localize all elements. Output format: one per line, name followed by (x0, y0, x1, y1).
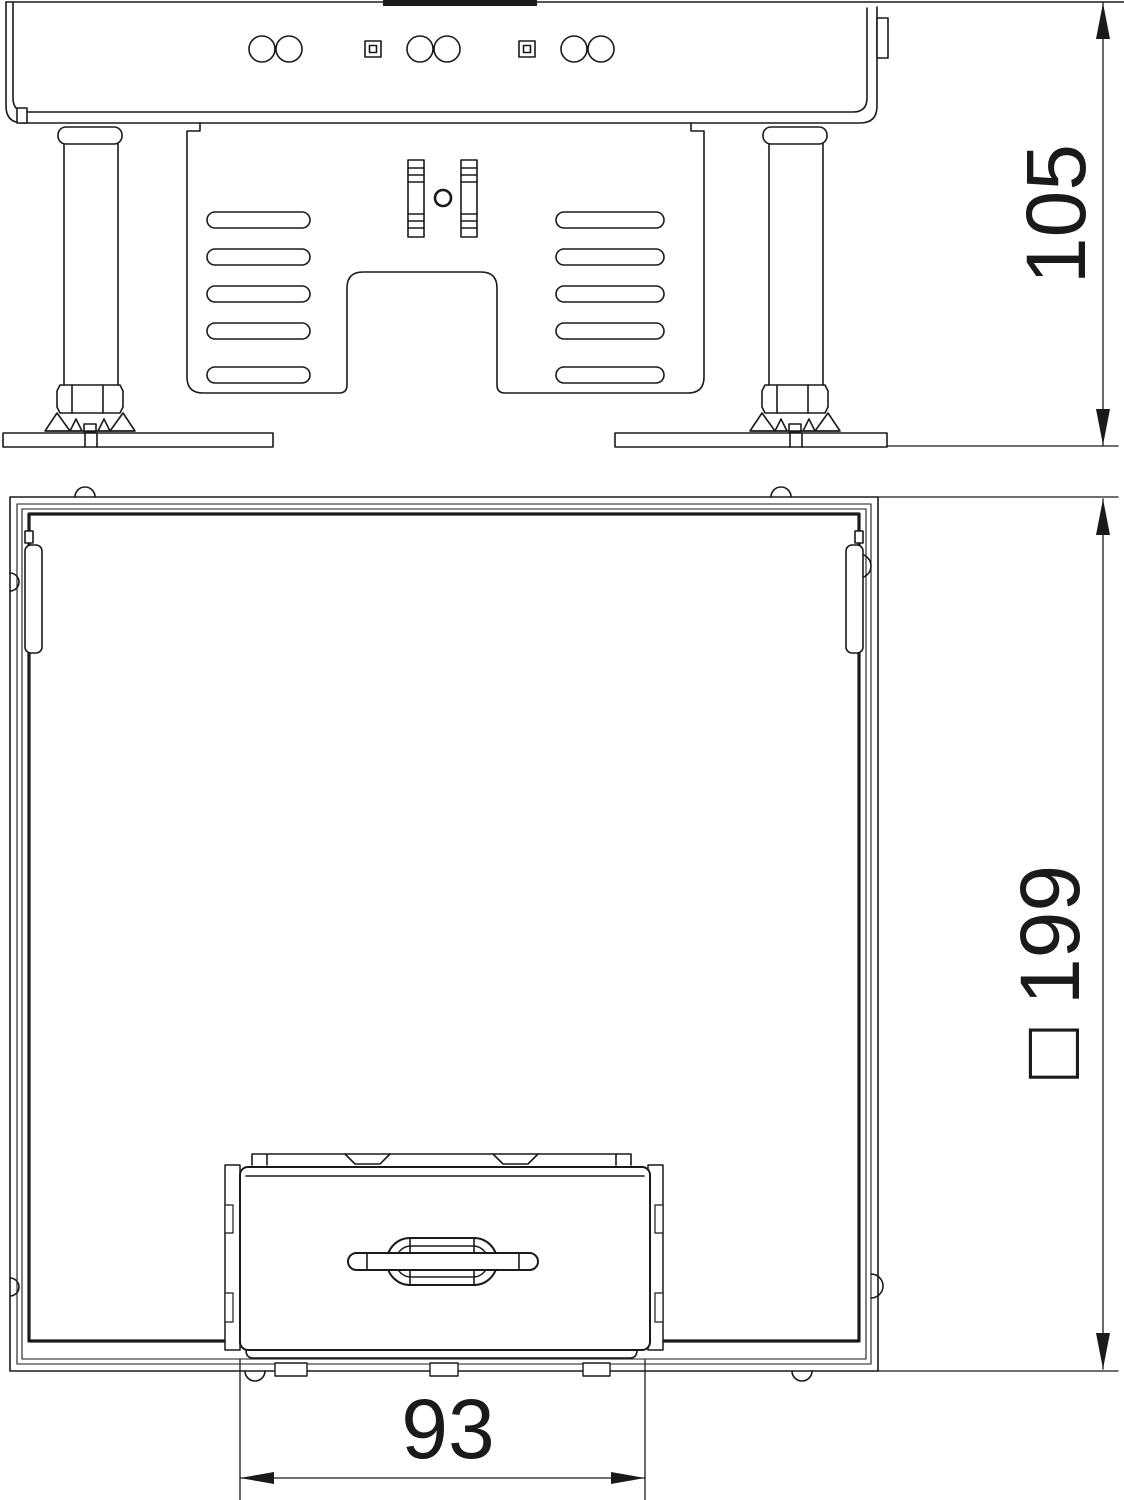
dimension-label-height: 105 (1011, 104, 1101, 324)
technical-drawing (0, 0, 1124, 1500)
side-elevation-view (3, 0, 1124, 447)
cassette-insert (225, 1154, 663, 1376)
leveling-foot-right (615, 127, 887, 447)
leveling-foot-left (3, 127, 273, 447)
drawing-canvas: 105 □ 199 93 (0, 0, 1124, 1500)
mounting-plate (187, 123, 704, 393)
dimension-label-outer-square: □ 199 (1005, 812, 1095, 1132)
dimension-label-insert-width: 93 (348, 1384, 548, 1474)
plan-view (10, 487, 1118, 1500)
housing-body (6, 0, 1124, 123)
